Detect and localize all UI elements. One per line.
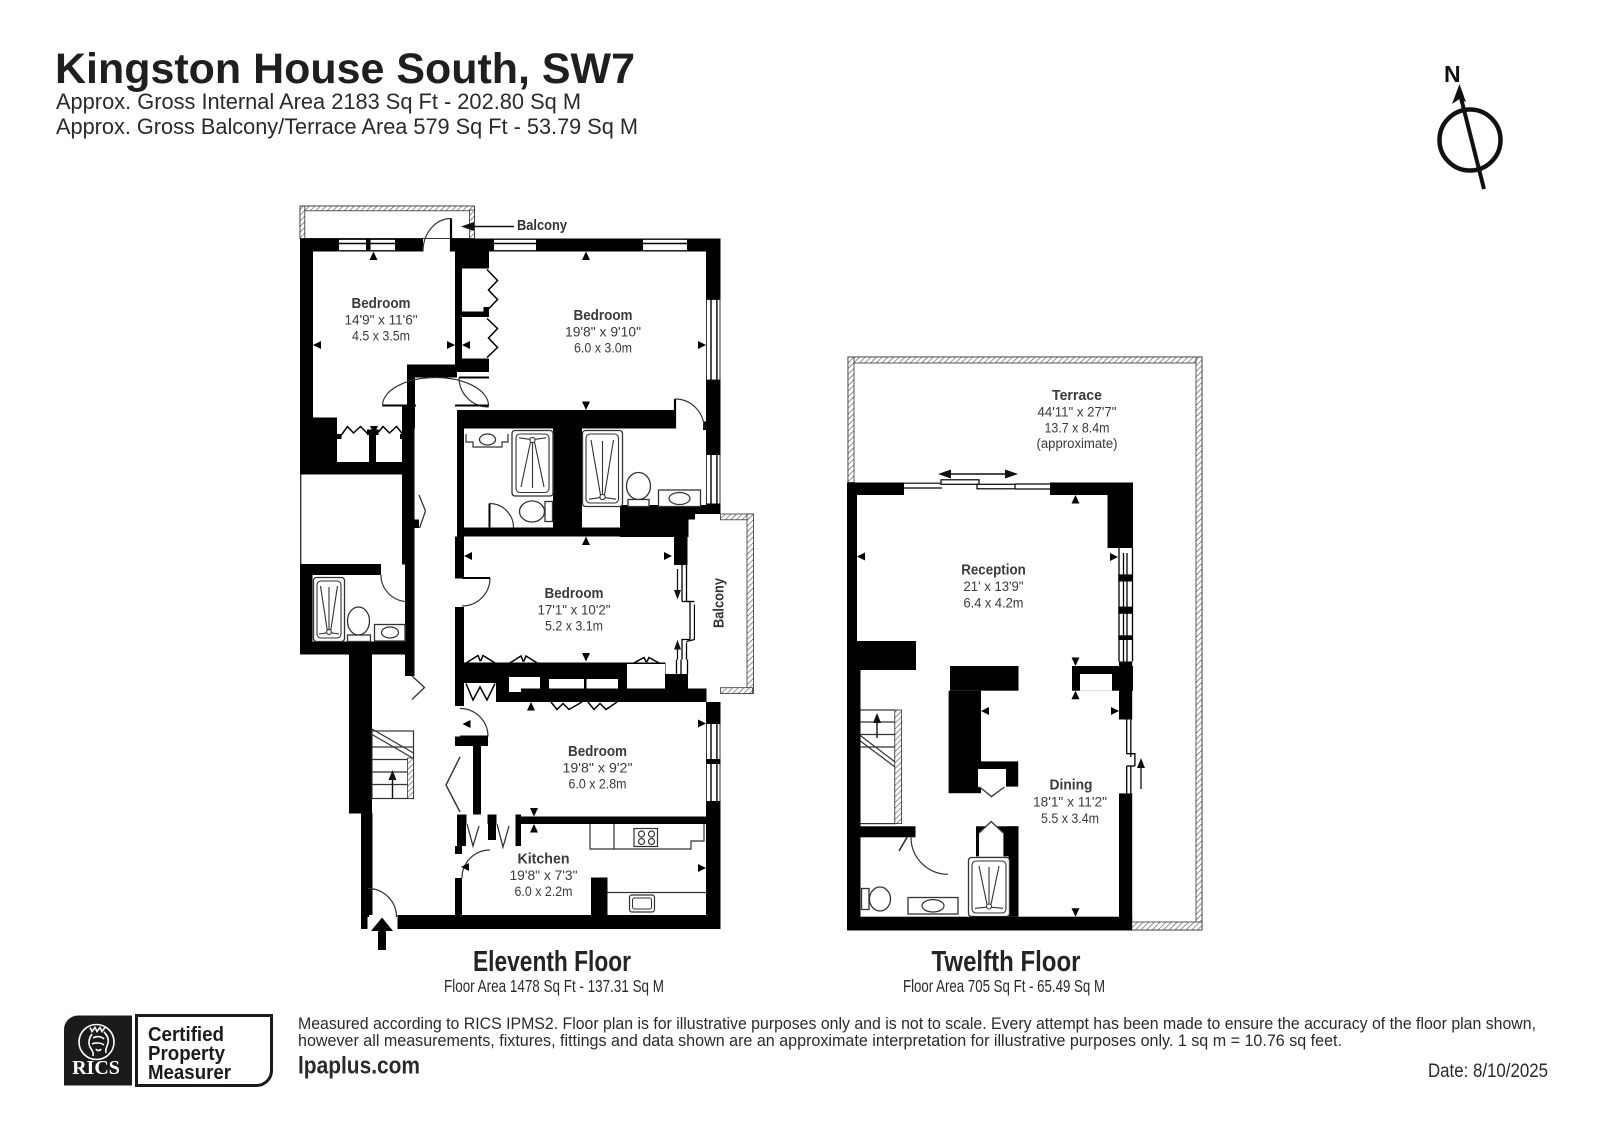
svg-text:21' x 13'9": 21' x 13'9" bbox=[964, 579, 1024, 595]
svg-text:Bedroom: Bedroom bbox=[574, 308, 633, 324]
svg-text:RICS: RICS bbox=[72, 1057, 120, 1079]
svg-text:Terrace: Terrace bbox=[1052, 388, 1102, 404]
svg-text:Twelfth Floor: Twelfth Floor bbox=[932, 946, 1081, 978]
svg-text:Floor Area 1478 Sq Ft - 137.31: Floor Area 1478 Sq Ft - 137.31 Sq M bbox=[444, 976, 664, 996]
svg-text:18'1" x 11'2": 18'1" x 11'2" bbox=[1033, 795, 1107, 811]
svg-text:Bedroom: Bedroom bbox=[568, 744, 627, 760]
svg-text:6.4 x 4.2m: 6.4 x 4.2m bbox=[964, 595, 1024, 611]
svg-text:Bedroom: Bedroom bbox=[545, 586, 604, 602]
svg-text:5.5 x 3.4m: 5.5 x 3.4m bbox=[1041, 811, 1099, 827]
svg-text:Balcony: Balcony bbox=[517, 217, 568, 234]
svg-text:44'11" x 27'7": 44'11" x 27'7" bbox=[1038, 405, 1117, 421]
svg-text:Bedroom: Bedroom bbox=[352, 296, 411, 312]
svg-text:6.0 x 3.0m: 6.0 x 3.0m bbox=[574, 341, 632, 357]
svg-text:(approximate): (approximate) bbox=[1037, 436, 1118, 452]
svg-text:6.0 x 2.2m: 6.0 x 2.2m bbox=[515, 884, 573, 900]
svg-text:Date: 8/10/2025: Date: 8/10/2025 bbox=[1428, 1061, 1548, 1082]
svg-text:13.7 x 8.4m: 13.7 x 8.4m bbox=[1045, 421, 1110, 437]
svg-text:Measured according to RICS IPM: Measured according to RICS IPMS2. Floor … bbox=[298, 1015, 1536, 1033]
svg-text:Approx. Gross Internal Area 21: Approx. Gross Internal Area 2183 Sq Ft -… bbox=[56, 89, 581, 114]
svg-text:Kingston House South, SW7: Kingston House South, SW7 bbox=[55, 46, 635, 93]
svg-text:Eleventh Floor: Eleventh Floor bbox=[473, 946, 631, 978]
svg-text:17'1" x 10'2": 17'1" x 10'2" bbox=[538, 603, 611, 619]
svg-text:19'8" x 9'2": 19'8" x 9'2" bbox=[563, 761, 633, 777]
svg-text:Measurer: Measurer bbox=[148, 1062, 231, 1084]
svg-text:19'8" x 9'10": 19'8" x 9'10" bbox=[565, 325, 641, 341]
svg-text:Floor Area 705 Sq Ft - 65.49 S: Floor Area 705 Sq Ft - 65.49 Sq M bbox=[903, 976, 1105, 996]
svg-text:19'8" x 7'3": 19'8" x 7'3" bbox=[510, 868, 578, 884]
svg-text:Kitchen: Kitchen bbox=[518, 852, 570, 868]
svg-text:Reception: Reception bbox=[961, 563, 1026, 579]
svg-text:Dining: Dining bbox=[1050, 778, 1093, 794]
svg-text:N: N bbox=[1444, 61, 1461, 87]
svg-text:Balcony: Balcony bbox=[711, 577, 728, 628]
svg-text:5.2 x 3.1m: 5.2 x 3.1m bbox=[545, 619, 603, 635]
svg-text:however all measurements, fixt: however all measurements, fixtures, fitt… bbox=[298, 1032, 1342, 1050]
svg-text:lpaplus.com: lpaplus.com bbox=[298, 1053, 420, 1080]
svg-text:4.5 x 3.5m: 4.5 x 3.5m bbox=[352, 329, 410, 345]
svg-text:14'9" x 11'6": 14'9" x 11'6" bbox=[345, 313, 418, 329]
svg-text:6.0 x 2.8m: 6.0 x 2.8m bbox=[569, 777, 627, 793]
svg-text:Approx. Gross Balcony/Terrace: Approx. Gross Balcony/Terrace Area 579 S… bbox=[56, 114, 638, 139]
